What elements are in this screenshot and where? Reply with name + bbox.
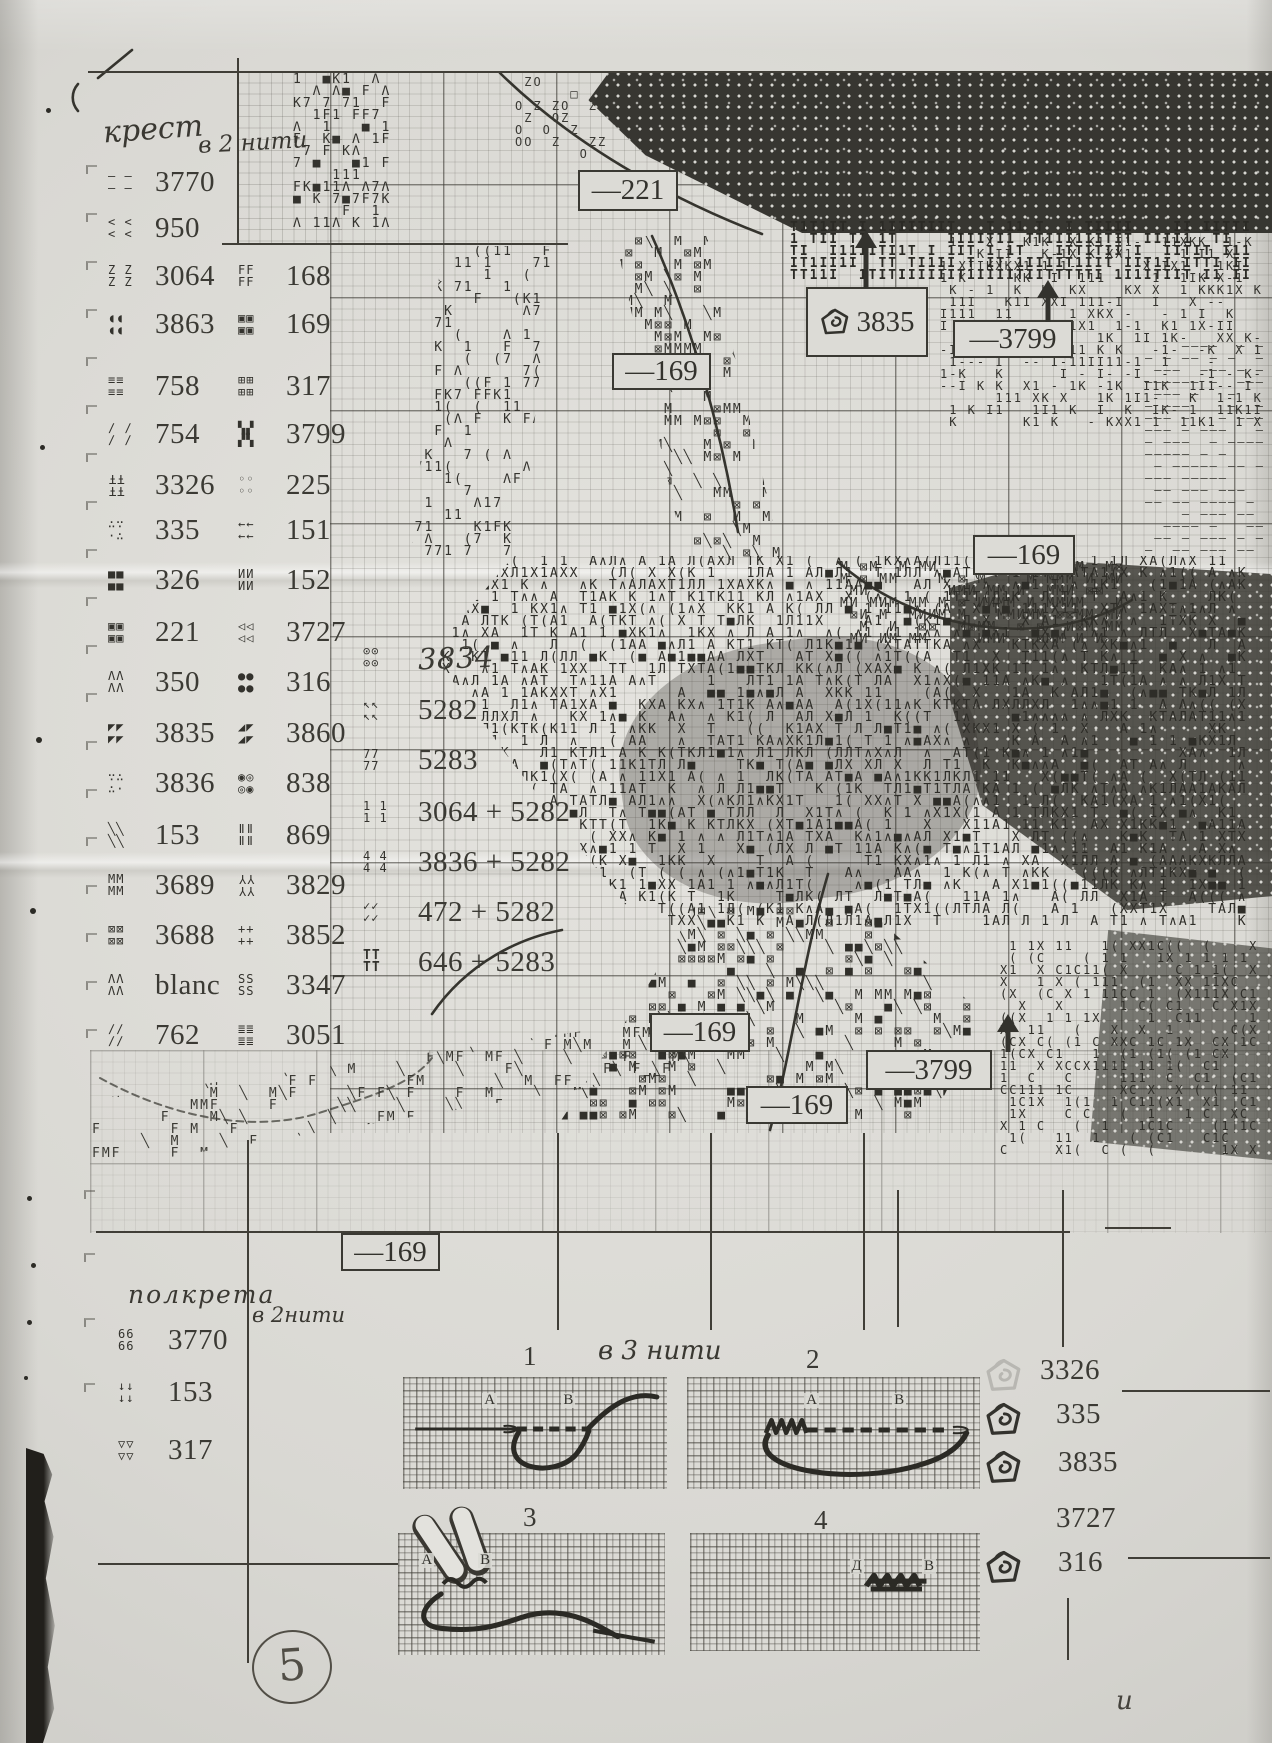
color-code: 3326 xyxy=(155,469,215,502)
color-code: 838 xyxy=(286,767,331,800)
legend-symbol: 77 77 xyxy=(363,748,379,772)
color-code: 152 xyxy=(286,564,331,597)
fabric-point-label: А xyxy=(419,1553,434,1568)
color-code: 3770 xyxy=(168,1324,228,1357)
color-code: 153 xyxy=(155,819,200,852)
french-knot-icon xyxy=(820,308,850,336)
up-arrow xyxy=(995,1014,1021,1057)
color-code: 3064 + 5282 xyxy=(418,796,570,829)
legend-symbol: ∕∕ ∕∕ xyxy=(108,1023,124,1047)
color-code: 3727 xyxy=(286,616,346,649)
legend-symbol: MM MM xyxy=(108,873,124,897)
color-code: 472 + 5282 xyxy=(418,896,555,929)
color-code: 317 xyxy=(168,1434,213,1467)
scan-edge-streak xyxy=(26,1448,58,1743)
callout-169: —169 xyxy=(612,353,711,390)
margin-tick xyxy=(86,597,97,606)
rule-line xyxy=(1062,1190,1064,1347)
legend-symbol: 66 66 xyxy=(118,1328,134,1352)
legend-symbol: ✓✓ ✓✓ xyxy=(363,900,379,924)
margin-tick xyxy=(86,645,97,654)
margin-tick xyxy=(86,261,97,270)
legend-symbol: ▚▞ ▞▚ xyxy=(238,422,254,446)
margin-tick xyxy=(84,1383,95,1392)
color-code: blanc xyxy=(155,969,220,1002)
scan-speck xyxy=(46,108,51,113)
legend-symbol: ++ ++ xyxy=(238,923,254,947)
color-code: 316 xyxy=(286,666,331,699)
color-code: 3347 xyxy=(286,969,346,1002)
scan-speck xyxy=(30,908,36,914)
legend-symbol: ǁǁ ǁǁ xyxy=(238,823,254,847)
color-code: 3770 xyxy=(155,166,215,199)
rule-line xyxy=(222,243,568,245)
legend-symbol: ∴∵ ·∴ xyxy=(108,518,124,542)
legend-symbol: ≡≡ ≡≡ xyxy=(108,374,124,398)
callout-169: —169 xyxy=(341,1233,440,1271)
up-arrow xyxy=(1035,280,1061,327)
legend-symbol: SS SS xyxy=(238,973,254,997)
fabric-point-label: В xyxy=(478,1553,492,1568)
margin-tick xyxy=(86,213,97,222)
color-code: 5283 xyxy=(418,744,478,777)
rule-line xyxy=(98,1563,398,1565)
margin-tick xyxy=(84,1253,95,1262)
color-code: 335 xyxy=(155,514,200,547)
scan-speck xyxy=(31,1263,36,1268)
callout-221: —221 xyxy=(578,170,678,211)
legend-symbol: < < < < xyxy=(108,216,133,240)
color-code: 3688 xyxy=(155,919,215,952)
fabric-point-label: В xyxy=(892,1393,906,1408)
color-code: 151 xyxy=(286,514,331,547)
french-knot-icon xyxy=(985,1450,1023,1485)
legend-symbol: ИИ ИИ xyxy=(238,568,254,592)
legend-symbol: ←← ←← xyxy=(238,518,254,542)
legend-symbol: ▽▽ ▽▽ xyxy=(118,1438,134,1462)
legend-symbol: ╲╲ ╲╲ xyxy=(108,823,124,847)
rule-line xyxy=(1128,1557,1270,1559)
color-code: 3689 xyxy=(155,869,215,902)
color-code: 762 xyxy=(155,1019,200,1052)
legend-symbol: – – – – xyxy=(108,170,133,194)
color-code: 3829 xyxy=(286,869,346,902)
legend-symbol: ⊠⊠ ⊠⊠ xyxy=(108,923,124,947)
legend-symbol: ↓↓ ↓↓ xyxy=(118,1380,134,1404)
callout-label: —169 xyxy=(354,1236,427,1269)
french-knot-icon-wrap xyxy=(985,1402,1023,1442)
thread-illustration xyxy=(403,1377,667,1489)
callout-169: —169 xyxy=(746,1086,848,1124)
diagram-number-2: 2 xyxy=(806,1344,820,1375)
callout-label: —3799 xyxy=(970,323,1057,356)
callout-label: —3799 xyxy=(886,1054,973,1087)
margin-tick xyxy=(84,1190,95,1199)
color-code: 5282 xyxy=(418,694,478,727)
callout-label: —169 xyxy=(664,1016,737,1049)
color-code: 3836 xyxy=(155,767,215,800)
fabric-point-label: В xyxy=(922,1559,936,1574)
legend-symbol: ◦◦ ◦◦ xyxy=(238,473,254,497)
margin-tick xyxy=(86,501,97,510)
margin-tick xyxy=(86,933,97,942)
rule-line xyxy=(88,71,1272,73)
legend-symbol: 1 1 1 1 xyxy=(363,800,388,824)
color-code: 326 xyxy=(155,564,200,597)
color-code: 153 xyxy=(168,1376,213,1409)
color-code: 646 + 5283 xyxy=(418,946,555,979)
color-code: 869 xyxy=(286,819,331,852)
legend-symbol: ▣▣ ▣▣ xyxy=(238,312,254,336)
scan-speck xyxy=(40,445,45,450)
scanned-cross-stitch-pattern-page: крест в 2 нити полкрета в 2нити в 3 нити… xyxy=(0,0,1272,1743)
margin-tick xyxy=(86,789,97,798)
fabric-point-label: В xyxy=(561,1393,575,1408)
callout-label: —169 xyxy=(988,539,1061,572)
color-code: 3835 xyxy=(155,717,215,750)
french-knot-icon-wrap xyxy=(985,1358,1023,1398)
legend-symbol: ●● ●● xyxy=(238,670,254,694)
color-code: 169 xyxy=(286,308,331,341)
callout-3835: 3835 xyxy=(806,287,928,357)
color-code: 3852 xyxy=(286,919,346,952)
legend-symbol: ◖◖ ◖◖ xyxy=(108,312,124,336)
color-code: 3051 xyxy=(286,1019,346,1052)
color-code: 3799 xyxy=(286,418,346,451)
legend-symbol: ΥΥ ΥΥ xyxy=(238,873,254,897)
chart-dark-area-bottomright xyxy=(1090,930,1272,1160)
scan-speck xyxy=(36,737,42,743)
callout-label: —221 xyxy=(592,174,665,207)
legend-symbol: ↖↖ ↖↖ xyxy=(363,698,379,722)
legend-symbol: ◤◤ ◤◤ xyxy=(108,721,124,745)
color-code: 3835 xyxy=(1058,1446,1118,1479)
thread-illustration xyxy=(690,1533,980,1651)
legend-symbol: 4 4 4 4 xyxy=(363,850,388,874)
callout-label: 3835 xyxy=(857,306,915,339)
margin-tick xyxy=(86,549,97,558)
french-knot-icon xyxy=(985,1358,1023,1393)
legend-symbol: FF FF xyxy=(238,264,254,288)
margin-tick xyxy=(86,357,97,366)
legend-symbol: ΛΛ ΛΛ xyxy=(108,670,124,694)
scan-speck xyxy=(27,1196,32,1201)
legend-symbol: ∕ ∕ ∕ ∕ xyxy=(108,422,133,446)
callout-169: —169 xyxy=(973,535,1075,575)
legend-symbol: ◉◎ ◎◉ xyxy=(238,771,254,795)
color-code: 3860 xyxy=(286,717,346,750)
margin-tick xyxy=(86,1029,97,1038)
rule-line xyxy=(1122,1390,1270,1392)
color-code: 3727 xyxy=(1056,1502,1116,1535)
french-knot-icon xyxy=(985,1550,1023,1585)
scan-speck xyxy=(24,1376,28,1380)
color-code: 221 xyxy=(155,616,200,649)
legend-symbol: ≣≣ ≣≣ xyxy=(238,1023,254,1047)
diagram-number-3: 3 xyxy=(523,1502,537,1533)
legend-symbol: ŦŦ ŦŦ xyxy=(108,473,124,497)
diagram-number-4: 4 xyxy=(814,1505,828,1536)
french-knot-icon-wrap xyxy=(985,1550,1023,1590)
fabric-point-label: Д xyxy=(850,1559,864,1574)
color-code: 3064 xyxy=(155,260,215,293)
half-cross-threads: в 2нити xyxy=(252,1303,345,1327)
stitch-diagram-panel-4: ДВ xyxy=(690,1533,980,1651)
rule-line xyxy=(1067,1598,1069,1660)
cross-stitch-heading: крест xyxy=(102,109,204,151)
color-code: 350 xyxy=(155,666,200,699)
callout-label: —169 xyxy=(625,355,698,388)
rule-line xyxy=(897,1190,899,1327)
diagram-number-1: 1 xyxy=(523,1341,537,1372)
fabric-point-label: А xyxy=(804,1393,819,1408)
margin-tick xyxy=(86,741,97,750)
diagram-threads-note: в 3 нити xyxy=(598,1336,721,1366)
margin-tick xyxy=(86,405,97,414)
rule-line xyxy=(247,1140,249,1663)
margin-tick xyxy=(86,453,97,462)
color-code: 225 xyxy=(286,469,331,502)
stitch-diagram-panel-1: АВ xyxy=(403,1377,667,1489)
fabric-point-label: А xyxy=(482,1393,497,1408)
color-code: 3836 + 5282 xyxy=(418,846,570,879)
rule-line xyxy=(237,58,239,245)
color-code: 3834 xyxy=(417,640,494,677)
legend-symbol: ■■ ■■ xyxy=(108,568,124,592)
color-code: 316 xyxy=(1058,1546,1103,1579)
legend-symbol: ◢◤ ◢◤ xyxy=(238,721,254,745)
french-knot-icon-wrap xyxy=(985,1450,1023,1490)
callout-3799: —3799 xyxy=(866,1050,992,1090)
color-code: 335 xyxy=(1056,1398,1101,1431)
margin-tick xyxy=(86,981,97,990)
callout-label: —169 xyxy=(761,1089,834,1122)
legend-symbol: ⊞⊞ ⊞⊞ xyxy=(238,374,254,398)
color-code: 754 xyxy=(155,418,200,451)
page-number-value: 5 xyxy=(276,1639,307,1692)
rule-line xyxy=(96,1231,1070,1233)
margin-tick xyxy=(84,1318,95,1327)
stitch-diagram-panel-2: АВ xyxy=(687,1377,980,1489)
thread-illustration xyxy=(398,1533,665,1655)
page-number: 5 xyxy=(248,1626,335,1708)
legend-symbol: ∵∴ ∴· xyxy=(108,771,124,795)
french-knot-icon xyxy=(985,1402,1023,1437)
stitch-diagram-panel-3: АВ xyxy=(398,1533,665,1655)
legend-symbol: ▣▣ ▣▣ xyxy=(108,620,124,644)
thread-illustration xyxy=(687,1377,980,1489)
color-code: 3326 xyxy=(1040,1354,1100,1387)
rule-line xyxy=(1105,1227,1171,1229)
chart-grid-topleft xyxy=(237,71,342,243)
callout-169: —169 xyxy=(650,1013,750,1052)
color-code: 317 xyxy=(286,370,331,403)
color-code: 168 xyxy=(286,260,331,293)
scan-speck xyxy=(27,1320,32,1325)
legend-symbol: TT TT xyxy=(363,950,381,974)
legend-symbol: ⊙⊙ ⊙⊙ xyxy=(363,645,379,669)
margin-tick xyxy=(86,693,97,702)
color-code: 3863 xyxy=(155,308,215,341)
corner-mark: и xyxy=(1116,1686,1133,1716)
margin-tick xyxy=(86,885,97,894)
margin-tick xyxy=(86,165,97,174)
margin-tick xyxy=(86,837,97,846)
up-arrow xyxy=(853,230,879,293)
color-code: 950 xyxy=(155,212,200,245)
legend-symbol: ΛΛ ΛΛ xyxy=(108,973,124,997)
color-code: 758 xyxy=(155,370,200,403)
margin-tick xyxy=(86,309,97,318)
legend-symbol: Z Z Z Z xyxy=(108,264,133,288)
legend-symbol: ◁◁ ◁◁ xyxy=(238,620,254,644)
